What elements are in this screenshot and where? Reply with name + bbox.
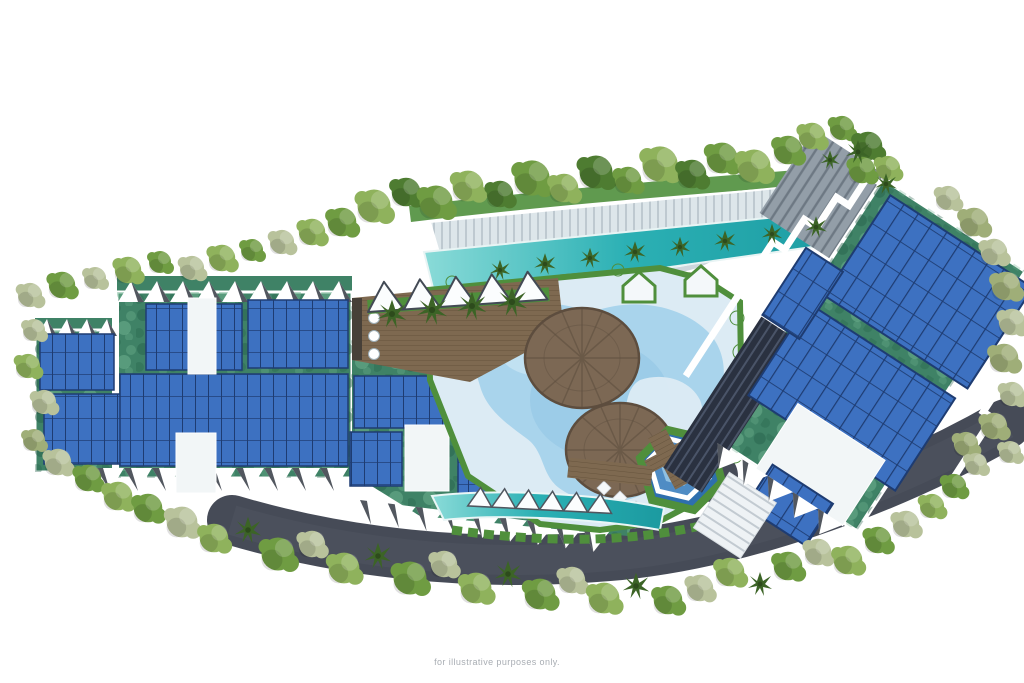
- caption: for illustrative purposes only.: [0, 657, 994, 667]
- gable-pavilion: [685, 266, 717, 296]
- site-plan-image: [0, 0, 1024, 683]
- site-plan-page: for illustrative purposes only.: [0, 0, 1024, 683]
